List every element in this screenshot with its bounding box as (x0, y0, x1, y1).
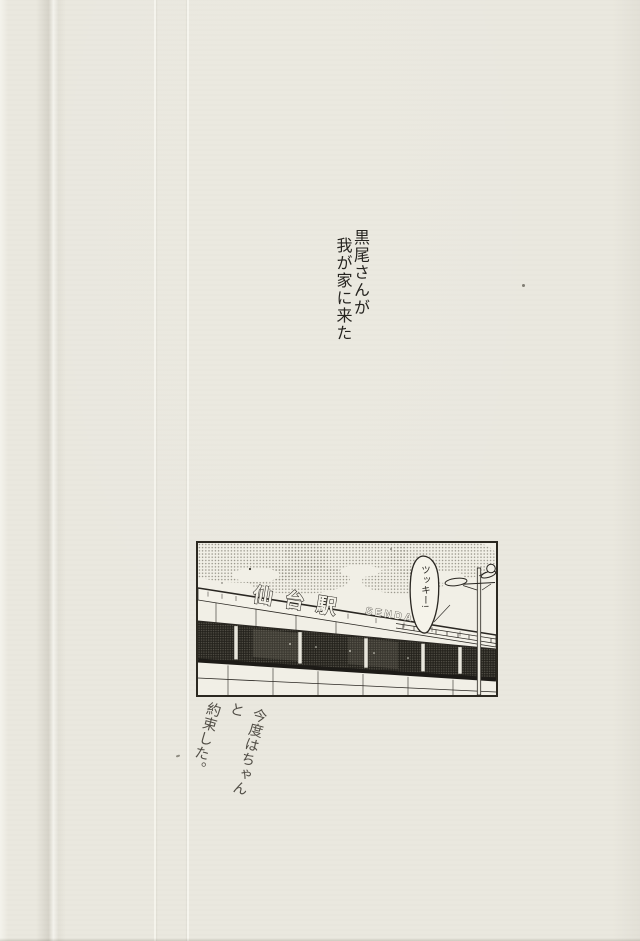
speech-bubble-text: ツッキー! (418, 565, 431, 629)
manga-panel: 仙台駅 SENDAI ツッキー! (196, 541, 498, 697)
scan-edge-right (612, 0, 640, 941)
scan-edge-left (0, 0, 8, 941)
paper-fold-line (187, 0, 189, 941)
narration-line: 我が家に来た (333, 237, 351, 345)
dust-speck (176, 755, 180, 758)
manga-page: 黒尾さんが 我が家に来た (0, 0, 640, 941)
paper-crease (36, 0, 66, 941)
caption-handwritten: 今度はちゃんと 約束した。 (180, 693, 271, 802)
narration-line: 黒尾さんが (351, 229, 369, 345)
panel-illustration: 仙台駅 SENDAI (198, 543, 496, 695)
paper-fold-line (154, 0, 156, 941)
dust-speck (522, 284, 525, 287)
narration-text: 黒尾さんが 我が家に来た (333, 229, 368, 345)
